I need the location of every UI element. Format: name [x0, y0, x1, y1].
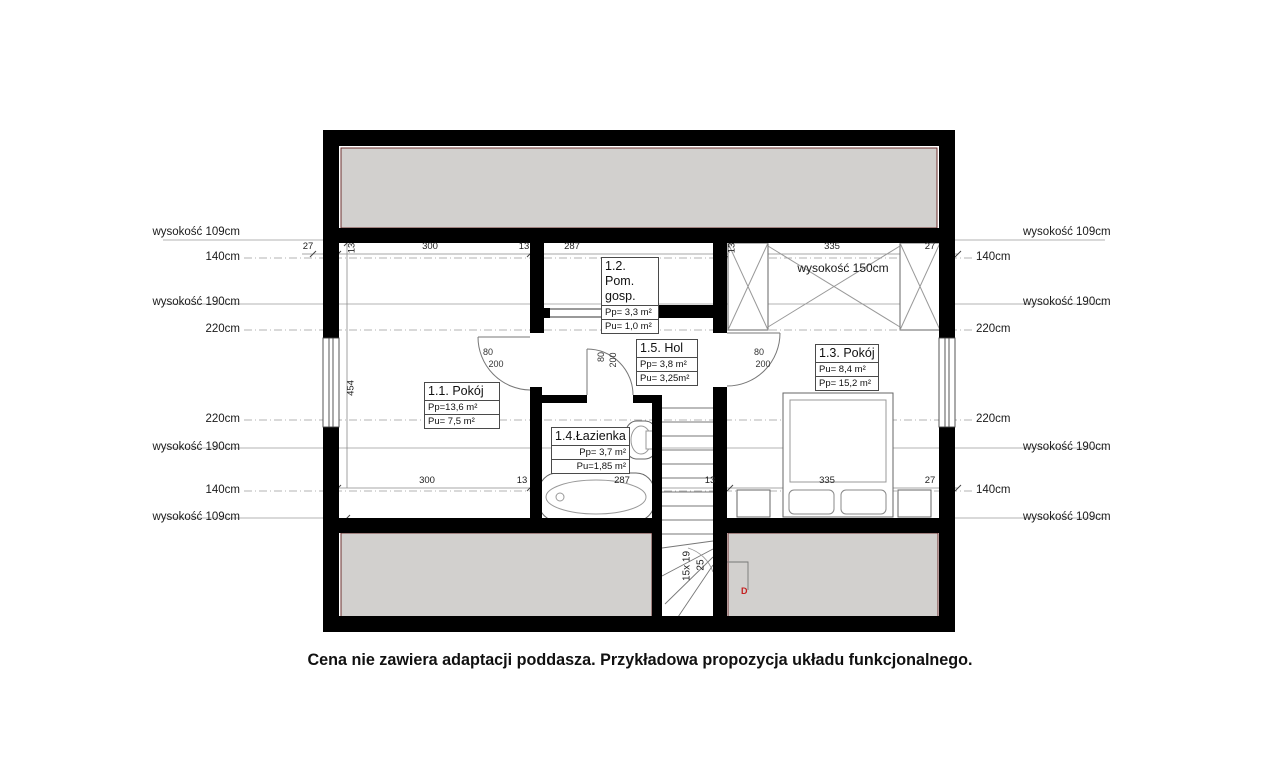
room-1-2-name: 1.2. Pom. gosp.	[602, 258, 658, 306]
roof-band-bottom-left	[341, 533, 652, 617]
dim-side-454: 454	[346, 380, 357, 396]
roof-band-bottom-right	[728, 533, 938, 617]
height-label-109-top-left: wysokość 109cm	[148, 226, 240, 238]
dim-top-13-right: 13	[727, 243, 738, 254]
outer-wall-bottom	[323, 616, 955, 632]
wall-stairwell-left	[652, 395, 662, 616]
winder-step	[662, 541, 713, 548]
room-label-1-2: 1.2. Pom. gosp. Pp= 3,3 m² Pu= 1,0 m²	[601, 257, 659, 334]
dim-bottom-27: 27	[925, 475, 936, 486]
door11-width-label: 80	[483, 347, 493, 357]
wall-bathroom-left	[530, 387, 542, 518]
height-label-140-top-right: 140cm	[976, 251, 1011, 263]
wall-room11-pom	[530, 243, 544, 333]
dim-bottom-13-right: 13	[705, 475, 716, 486]
height-label-140-bottom-left: 140cm	[148, 484, 240, 496]
roof-band-top	[341, 148, 937, 228]
dim-top-287: 287	[564, 241, 580, 252]
room-1-2-area-pp: Pp= 3,3 m²	[602, 306, 658, 320]
attic-height-note: wysokość 150cm	[797, 261, 888, 275]
height-label-109-bottom-left: wysokość 109cm	[148, 511, 240, 523]
furniture	[539, 243, 940, 521]
outer-wall-top	[323, 130, 955, 146]
toilet	[626, 421, 656, 459]
dim-top-13-mid: 13	[519, 241, 530, 252]
wall-bathroom-top-left	[542, 395, 587, 403]
plan-caption: Cena nie zawiera adaptacji poddasza. Prz…	[32, 650, 1248, 670]
room-1-1-area-pp: Pp=13,6 m²	[425, 401, 499, 415]
door13-width-label: 80	[754, 347, 764, 357]
door-room-1-3	[727, 333, 780, 386]
room-1-4-area-pu: Pu=1,85 m²	[552, 460, 629, 473]
doorbath-width-label: 80	[596, 352, 606, 362]
room-1-4-area-pp: Pp= 3,7 m²	[552, 446, 629, 460]
dim-bottom-13-left: 13	[517, 475, 528, 486]
room-label-1-5: 1.5. Hol Pp= 3,8 m² Pu= 3,25m²	[636, 339, 698, 386]
room-1-1-name: 1.1. Pokój	[425, 383, 499, 401]
bathtub	[539, 473, 654, 521]
wall-pom-room13	[713, 243, 727, 333]
height-label-220-bottom-right: 220cm	[976, 413, 1011, 425]
window-right	[939, 338, 955, 427]
stairs-direction-marker: D	[741, 586, 748, 596]
wardrobe-left	[728, 243, 768, 330]
stairs-going-label: 25	[696, 559, 707, 570]
window-left	[323, 338, 339, 427]
dim-bottom-287: 287	[614, 475, 630, 486]
wall-stairwell-right	[713, 387, 727, 616]
height-label-190-top-left: wysokość 190cm	[148, 296, 240, 308]
height-label-220-bottom-left: 220cm	[148, 413, 240, 425]
knee-wall-bottom-right	[718, 518, 939, 533]
height-label-109-bottom-right: wysokość 109cm	[1023, 511, 1111, 523]
knee-wall-bottom-left	[339, 518, 662, 533]
height-label-190-bottom-left: wysokość 190cm	[148, 441, 240, 453]
room-label-1-4: 1.4.Łazienka Pp= 3,7 m² Pu=1,85 m²	[551, 427, 630, 474]
dim-top-300: 300	[422, 241, 438, 252]
wardrobe-right	[900, 243, 940, 330]
room-1-4-name: 1.4.Łazienka	[552, 428, 629, 446]
height-label-190-bottom-right: wysokość 190cm	[1023, 441, 1111, 453]
dim-top-13-left: 13	[347, 243, 358, 254]
room-label-1-3: 1.3. Pokój Pu= 8,4 m² Pp= 15,2 m²	[815, 344, 879, 391]
doorbath-height-label: 200	[608, 352, 618, 367]
bed	[783, 393, 893, 517]
dim-top-27-left: 27	[303, 241, 314, 252]
pillow	[841, 490, 886, 514]
door13-height-label: 200	[755, 359, 770, 369]
room-1-5-name: 1.5. Hol	[637, 340, 697, 358]
nightstand-right	[898, 490, 931, 517]
dim-top-27-right: 27	[925, 241, 936, 252]
stairs-step-count-label: 15x 19	[682, 551, 693, 581]
pillow	[789, 490, 834, 514]
room-label-1-1: 1.1. Pokój Pp=13,6 m² Pu= 7,5 m²	[424, 382, 500, 429]
height-label-109-top-right: wysokość 109cm	[1023, 226, 1111, 238]
nightstand-left	[737, 490, 770, 517]
room-1-5-area-pu: Pu= 3,25m²	[637, 372, 697, 385]
height-label-140-top-left: 140cm	[148, 251, 240, 263]
room-1-3-area-pu: Pu= 8,4 m²	[816, 363, 878, 377]
door11-height-label: 200	[488, 359, 503, 369]
room-1-2-area-pu: Pu= 1,0 m²	[602, 320, 658, 333]
height-label-190-top-right: wysokość 190cm	[1023, 296, 1111, 308]
height-label-220-top-left: 220cm	[148, 323, 240, 335]
height-label-220-top-right: 220cm	[976, 323, 1011, 335]
wall-pom-hall	[658, 305, 713, 318]
room-1-5-area-pp: Pp= 3,8 m²	[637, 358, 697, 372]
height-label-140-bottom-right: 140cm	[976, 484, 1011, 496]
floor-plan-page: wysokość 109cm 140cm wysokość 190cm 220c…	[0, 0, 1280, 768]
dim-top-335: 335	[824, 241, 840, 252]
room-1-3-name: 1.3. Pokój	[816, 345, 878, 363]
room-1-1-area-pu: Pu= 7,5 m²	[425, 415, 499, 428]
room-1-3-area-pp: Pp= 15,2 m²	[816, 377, 878, 390]
dim-bottom-335: 335	[819, 475, 835, 486]
dim-bottom-300: 300	[419, 475, 435, 486]
